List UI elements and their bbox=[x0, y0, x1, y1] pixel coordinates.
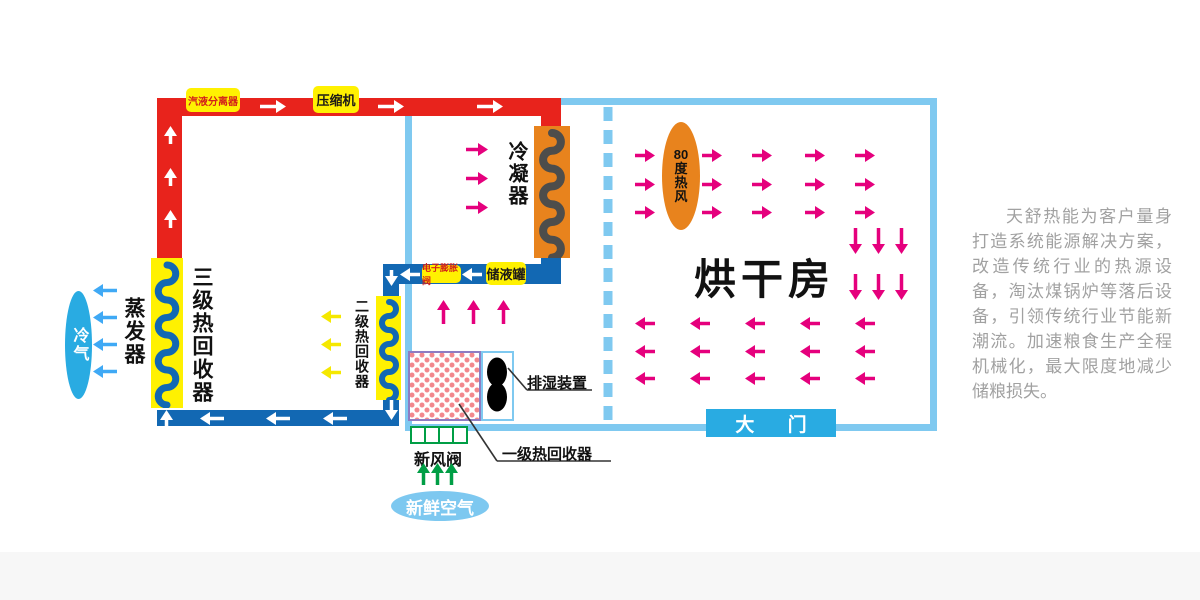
fresh-air-label: 新鲜空气 bbox=[406, 494, 474, 519]
condenser-coil bbox=[534, 126, 570, 258]
bottom-bar bbox=[0, 552, 1200, 600]
cold-air-arrows bbox=[93, 284, 117, 297]
cold-air-arrows bbox=[93, 338, 117, 351]
hot-gas-pipe-vertical bbox=[157, 98, 182, 258]
fan-icon bbox=[483, 353, 512, 419]
fresh-air-valve-label: 新风阀 bbox=[414, 446, 462, 470]
condenser-label: 冷凝器 bbox=[502, 141, 531, 207]
drying-room-title: 烘干房 bbox=[694, 246, 835, 307]
suction-line-pipe bbox=[157, 410, 399, 426]
cold-air-oval: 冷气 bbox=[65, 291, 92, 399]
cold-air-arrows bbox=[93, 365, 117, 378]
stage3-recovery-label: 三级热回收器 bbox=[186, 266, 216, 404]
stage3-recovery-coil bbox=[151, 258, 183, 408]
stage2-recovery-label: 二级热回收器 bbox=[352, 299, 372, 389]
hot-air-label: 80度热风 bbox=[671, 148, 691, 204]
stage1-recovery-label: 一级热回收器 bbox=[502, 443, 592, 464]
cold-air-label: 冷气 bbox=[67, 327, 91, 363]
gas-liquid-separator-label: 汽液分离器 bbox=[186, 88, 240, 112]
dehumidifier-label: 排湿装置 bbox=[527, 372, 587, 393]
heat-pump-drying-diagram: 冷凝器 三级热回收器 二级热回收器 蒸发器 冷气 汽液分离器 压缩机 电子膨胀阀… bbox=[0, 0, 1200, 600]
evaporator-label: 蒸发器 bbox=[118, 297, 148, 366]
stage1-recovery-box bbox=[408, 351, 481, 421]
fresh-air-oval: 新鲜空气 bbox=[391, 491, 489, 521]
stage2-heat-arrows bbox=[321, 338, 341, 351]
stage2-heat-arrows bbox=[321, 310, 341, 323]
fresh-air-valve-icon bbox=[410, 426, 468, 444]
liquid-line-pipe bbox=[383, 264, 561, 284]
stage2-recovery-coil bbox=[376, 296, 401, 400]
hot-air-oval: 80度热风 bbox=[662, 122, 700, 230]
company-description: 天舒热能为客户量身打造系统能源解决方案，改造传统行业的热源设备，淘汰煤锅炉等落后… bbox=[972, 204, 1172, 404]
stage2-inlet-pipe bbox=[383, 264, 399, 298]
cold-air-arrows bbox=[93, 311, 117, 324]
liquid-tank-label: 储液罐 bbox=[486, 262, 526, 285]
compressor-label: 压缩机 bbox=[313, 86, 359, 113]
door-label: 大 门 bbox=[706, 409, 836, 437]
dehumidifier-box bbox=[481, 351, 514, 421]
condenser-inlet-elbow bbox=[541, 98, 561, 128]
stage2-heat-arrows bbox=[321, 366, 341, 379]
expansion-valve-label: 电子膨胀阀 bbox=[422, 265, 461, 283]
